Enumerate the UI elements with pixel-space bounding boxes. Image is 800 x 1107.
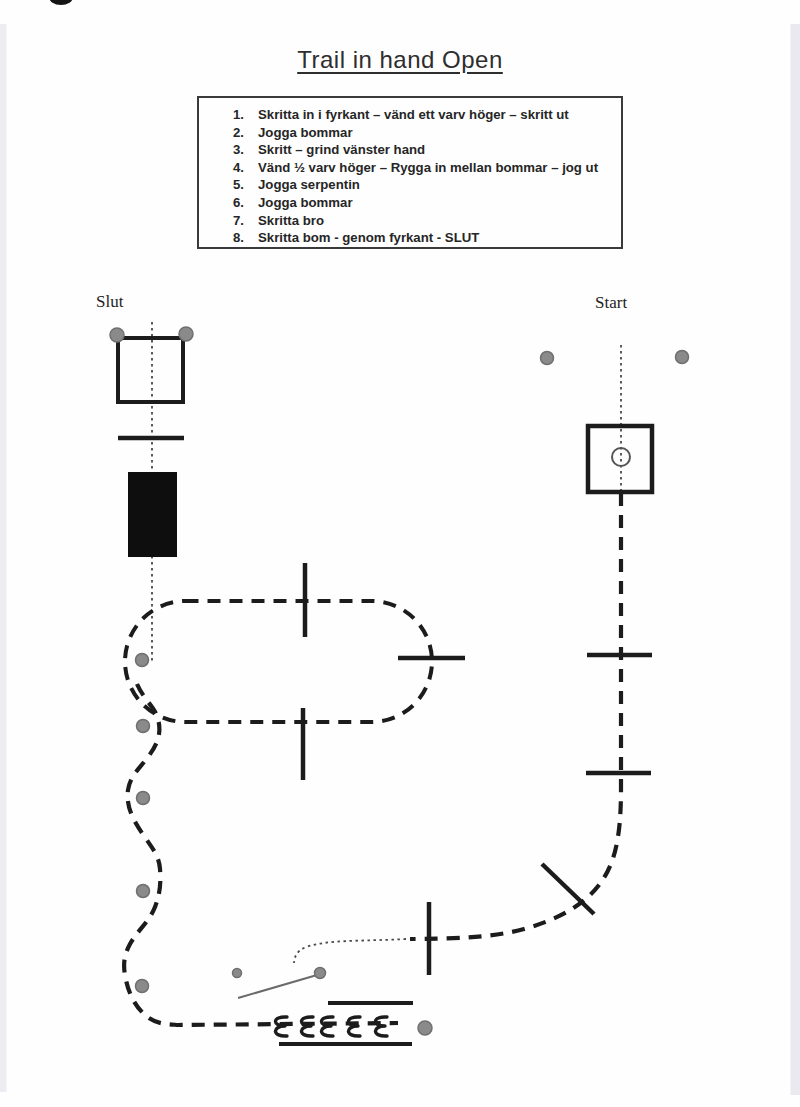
- backing-curl: [301, 1017, 313, 1036]
- backing-step-curls: [275, 1017, 387, 1036]
- finish-square: [118, 338, 183, 402]
- backing-curl: [275, 1017, 287, 1036]
- page-corner-logo-blob: [49, 0, 73, 5]
- document-page: Trail in hand Open 1.Skritta in i fyrkan…: [0, 0, 800, 1107]
- cone-marker: [137, 885, 150, 898]
- gate-line: [238, 975, 317, 998]
- cone-marker: [110, 328, 124, 342]
- cone-markers: [110, 327, 689, 1035]
- jog-path-from-start: [410, 493, 621, 939]
- jog-path-oval-loop: [125, 601, 432, 722]
- cone-marker: [137, 720, 150, 733]
- jog-path-serpentine: [124, 684, 398, 1025]
- cone-marker: [541, 352, 554, 365]
- cone-marker: [136, 980, 149, 993]
- start-square: [588, 426, 652, 492]
- cone-marker: [136, 654, 149, 667]
- gate-post-right: [315, 968, 326, 979]
- backing-curl: [348, 1017, 360, 1036]
- course-diagram: [0, 0, 800, 1107]
- backing-curl: [321, 1017, 333, 1036]
- cone-marker: [137, 792, 150, 805]
- backing-curl: [375, 1017, 387, 1036]
- cone-marker: [179, 327, 193, 341]
- cone-marker: [676, 351, 689, 364]
- bridge-rect: [128, 472, 177, 557]
- cone-marker: [418, 1021, 432, 1035]
- gate-post-left: [233, 969, 242, 978]
- walk-path-gate-approach: [294, 939, 406, 963]
- pole-bar-diagonal: [542, 864, 594, 914]
- turn-circle: [612, 448, 630, 466]
